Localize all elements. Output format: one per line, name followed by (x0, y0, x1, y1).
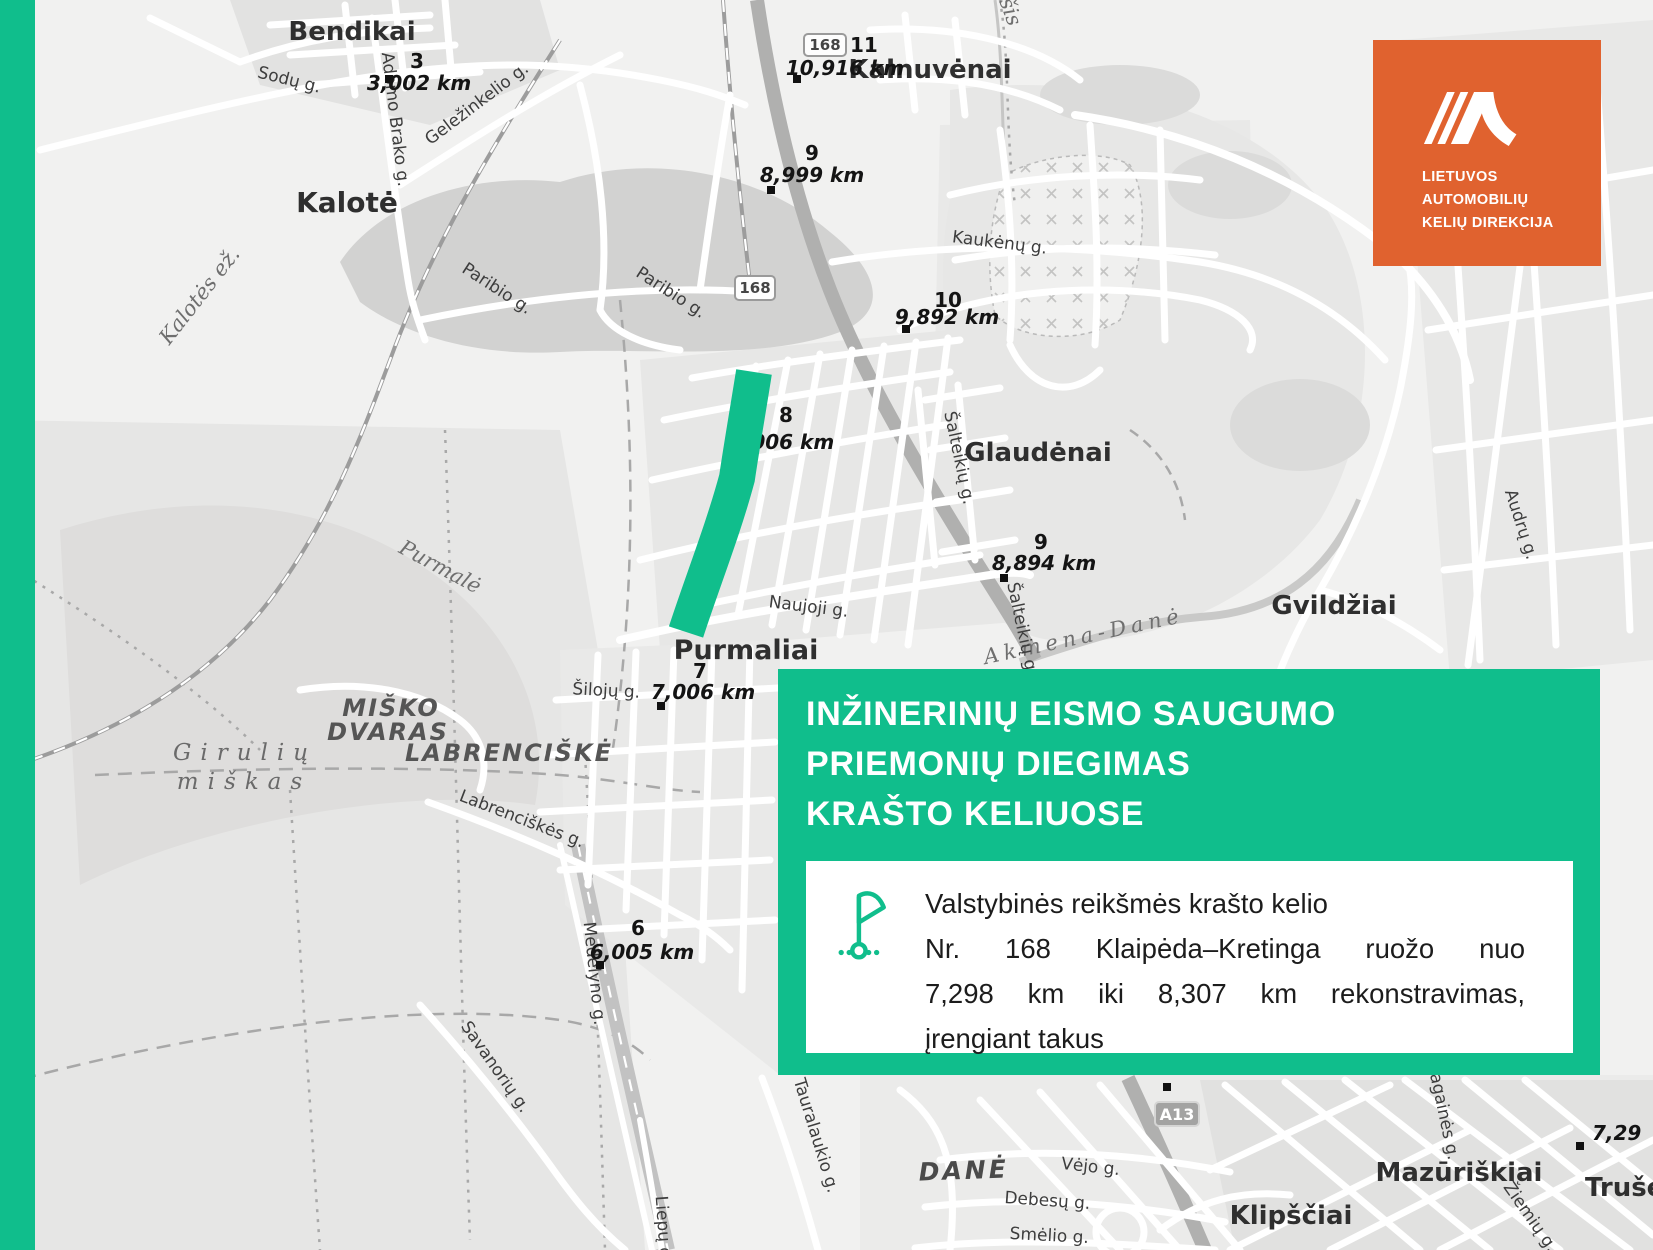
flag-icon-wrap (806, 861, 925, 1053)
lakd-logo-text: LIETUVOS AUTOMOBILIŲ KELIŲ DIREKCIJA (1422, 166, 1601, 235)
km-3-number: 3 (410, 49, 424, 73)
km-8-number: 8 (779, 403, 793, 427)
project-info-box: Valstybinės reikšmės krašto kelio Nr. 16… (806, 861, 1573, 1053)
project-description: Valstybinės reikšmės krašto kelio Nr. 16… (925, 861, 1525, 1053)
km-729-value: 7,29 (1592, 1121, 1641, 1145)
label-miskas: miškas (177, 769, 311, 795)
shield-168-top: 168 (809, 36, 840, 54)
km-9b-value: 8,894 km (992, 551, 1096, 575)
logo-line-3: KELIŲ DIREKCIJA (1422, 212, 1601, 235)
km-6-value: 6,005 km (590, 940, 694, 964)
km-9a-number: 9 (805, 141, 819, 165)
label-labrenciske: LABRENCIŠKĖ (405, 737, 613, 767)
km-3-value: 3,002 km (367, 71, 471, 95)
banner-title: INŽINERINIŲ EISMO SAUGUMO PRIEMONIŲ DIEG… (806, 689, 1572, 839)
street-liepu: Liepų g. (651, 1195, 676, 1250)
label-giruliu: Girulių (173, 740, 317, 766)
place-bendikai: Bendikai (288, 17, 415, 47)
place-truseliai: Trušeliai (1585, 1173, 1653, 1203)
shield-a13: A13 (1160, 1105, 1195, 1124)
label-dane: DANĖ (918, 1153, 1009, 1186)
info-line-1: Valstybinės reikšmės krašto kelio (925, 881, 1525, 926)
place-klipsciai: Klipščiai (1230, 1201, 1353, 1231)
title-line-3: KRAŠTO KELIUOSE (806, 789, 1572, 839)
place-mazuriskiai: Mazūriškiai (1376, 1158, 1543, 1188)
place-glaudenai: Glaudėnai (964, 438, 1112, 468)
info-line-2: Nr. 168 Klaipėda–Kretinga ruožo nuo (925, 926, 1525, 971)
street-smelio: Smėlio g. (1009, 1224, 1089, 1248)
place-kalote: Kalotė (296, 186, 398, 219)
logo-line-2: AUTOMOBILIŲ (1422, 189, 1601, 212)
flag-icon (835, 883, 897, 975)
info-line-4: įrengiant takus (925, 1016, 1525, 1061)
km-7-value: 7,006 km (651, 680, 755, 704)
shield-168: 168 (739, 279, 770, 297)
title-line-1: INŽINERINIŲ EISMO SAUGUMO (806, 689, 1572, 739)
km-9a-value: 8,999 km (760, 163, 864, 187)
km-11-value: 10,916 km (786, 56, 904, 80)
km-11-number: 11 (850, 33, 878, 57)
project-banner: INŽINERINIŲ EISMO SAUGUMO PRIEMONIŲ DIEG… (778, 669, 1600, 1075)
km-10-value: 9,892 km (895, 305, 999, 329)
left-accent-stripe (0, 0, 35, 1250)
place-gvildziai: Gvildžiai (1271, 591, 1396, 621)
lakd-logo-icon (1422, 90, 1528, 146)
info-line-3: 7,298 km iki 8,307 km rekonstravimas, (925, 971, 1525, 1016)
title-line-2: PRIEMONIŲ DIEGIMAS (806, 739, 1572, 789)
lakd-logo-box: LIETUVOS AUTOMOBILIŲ KELIŲ DIREKCIJA (1373, 40, 1601, 266)
km-6-number: 6 (631, 916, 645, 940)
logo-line-1: LIETUVOS (1422, 166, 1601, 189)
